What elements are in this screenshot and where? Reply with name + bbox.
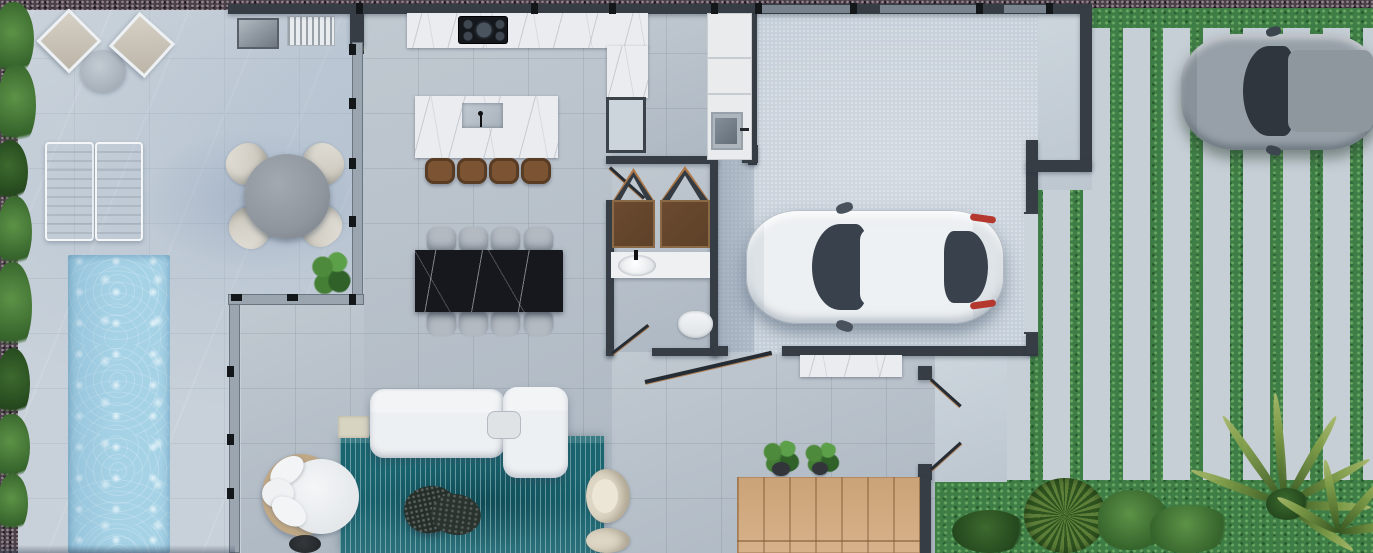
- white-car-roof: [860, 228, 954, 306]
- hedge-bush: [0, 196, 32, 270]
- family-wall-right-top: [918, 366, 932, 380]
- dining-chair: [427, 227, 456, 252]
- side-wall-east: [1080, 8, 1092, 168]
- bbq-grill: [237, 18, 279, 49]
- garage-window-lintel: [1004, 5, 1046, 13]
- glass-wall-west-lower: [229, 304, 240, 553]
- bar-stool: [521, 158, 551, 184]
- hedge-bush: [0, 414, 30, 482]
- wall-connector: [609, 3, 616, 14]
- toilet: [678, 311, 713, 338]
- wall-connector: [349, 98, 356, 109]
- dining-table: [415, 250, 563, 312]
- fan-palm: [1024, 478, 1106, 553]
- bar-stool: [457, 158, 487, 184]
- wardrobe-right: [660, 200, 710, 248]
- bar-stool: [489, 158, 519, 184]
- wall-connector: [227, 366, 234, 377]
- wall-connector: [531, 3, 538, 14]
- island-sink: [462, 103, 503, 128]
- marble-console: [800, 355, 902, 377]
- garage-window-lintel: [757, 5, 851, 13]
- wall-connector: [850, 3, 857, 14]
- hedge-bush: [0, 140, 28, 204]
- small-round-table: [80, 50, 126, 92]
- garage-window-lintel: [880, 5, 976, 13]
- cooktop: [458, 16, 508, 44]
- kitchen-counter-arm: [607, 46, 648, 98]
- island-faucet-stem: [480, 114, 482, 127]
- hedge-bush: [0, 262, 32, 354]
- floor-plan-render: [0, 0, 1373, 553]
- garage-door-threshold: [1024, 212, 1038, 334]
- sun-lounger: [45, 142, 94, 241]
- dining-chair: [427, 311, 456, 336]
- plant-pot: [772, 462, 790, 476]
- gray-car-roof: [1288, 50, 1373, 132]
- round-concrete-table: [244, 154, 330, 239]
- vent-grate: [287, 16, 335, 46]
- hedge-bush: [0, 474, 28, 534]
- dining-chair: [524, 227, 553, 252]
- hedge-bush: [0, 64, 36, 148]
- wall-connector: [356, 3, 363, 14]
- kitchen-counter: [407, 13, 648, 48]
- dining-chair: [524, 311, 553, 336]
- dining-chair: [459, 227, 488, 252]
- wall-connector: [755, 3, 762, 14]
- sofa-tray: [487, 411, 521, 439]
- fern-plant: [310, 250, 352, 298]
- wall-connector: [227, 488, 234, 499]
- wall-connector: [349, 294, 356, 305]
- wall-connector: [1046, 3, 1053, 14]
- dining-chair: [459, 311, 488, 336]
- plant-pot: [812, 462, 828, 475]
- bathroom-wall-top: [606, 156, 718, 164]
- vanity-faucet: [634, 250, 638, 260]
- wall-connector: [976, 3, 983, 14]
- wall-connector: [231, 294, 242, 301]
- utility-faucet: [740, 128, 749, 131]
- sofa-main: [370, 389, 505, 458]
- white-car-rear-glass: [944, 231, 988, 303]
- garage-wall-right-lower: [1026, 334, 1038, 354]
- glass-door-panel: [606, 97, 646, 153]
- dining-chair: [491, 227, 520, 252]
- wall-connector: [227, 434, 234, 445]
- glass-wall-west-upper: [352, 42, 363, 304]
- swimming-pool: [68, 255, 170, 553]
- utility-sink-basin: [715, 118, 737, 144]
- wall-connector: [349, 158, 356, 169]
- side-table-dark: [289, 535, 321, 553]
- garage-wall-bottom: [714, 346, 728, 356]
- hedge-bush: [0, 348, 30, 420]
- floor-mat: [338, 416, 369, 438]
- wall-connector: [711, 3, 718, 14]
- garage-wall-right-upper: [1026, 140, 1038, 214]
- cream-armchair-seat: [592, 479, 618, 513]
- bathroom-wall-bottom: [652, 348, 718, 356]
- bar-stool: [425, 158, 455, 184]
- wall-connector: [349, 216, 356, 227]
- wall-connector: [349, 44, 356, 55]
- wood-deck-seam: [737, 540, 920, 542]
- wardrobe-left: [612, 200, 655, 248]
- garden-bush: [952, 510, 1027, 553]
- sun-lounger: [95, 142, 143, 241]
- terrace-edge-shadow: [0, 545, 235, 553]
- side-wall-connector: [1026, 160, 1092, 172]
- wall-connector: [287, 294, 298, 301]
- dining-chair: [491, 311, 520, 336]
- rear-patio-pad: [931, 354, 1007, 482]
